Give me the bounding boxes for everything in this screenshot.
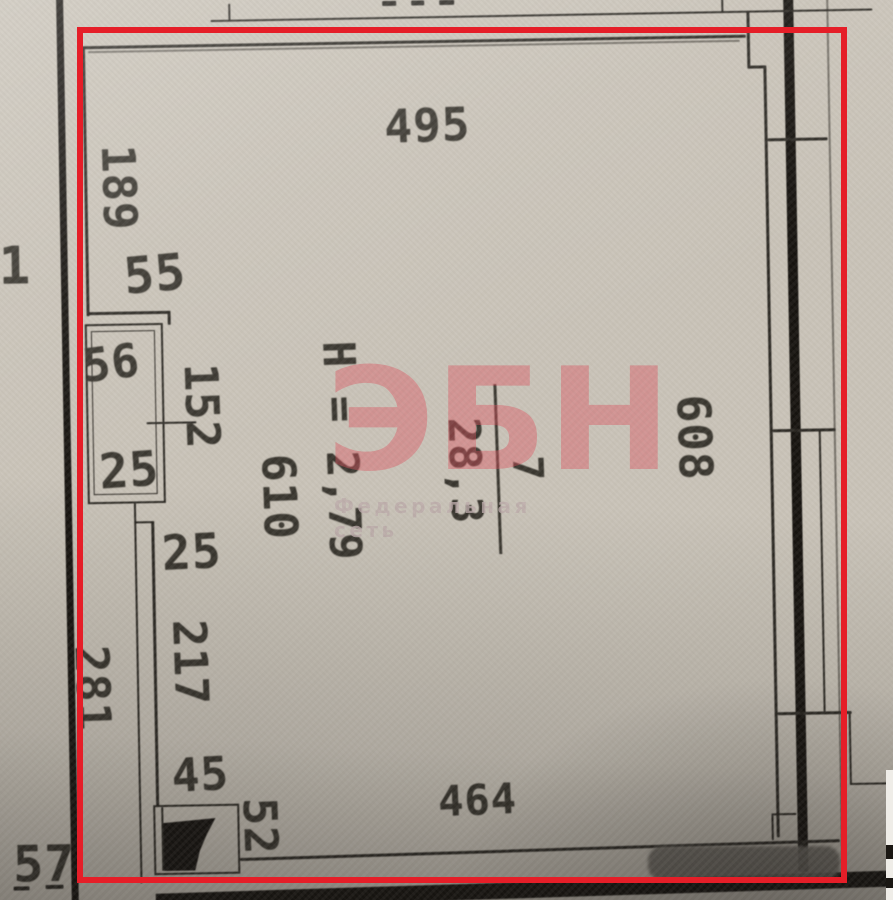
scan-edge-mark-1 [886,845,893,859]
wall-top-partition-1 [228,4,230,21]
wall-top-outer-face [210,8,872,22]
wall-left-outer [56,0,79,900]
dim-outside-bottom-57: 57 [13,839,76,890]
adjacent-room-label: 1 [0,240,31,293]
adjacent-wall-vertical [849,711,852,785]
floorplan-photo: 495 464 608 189 55 56 152 25 610 H = 2,7… [0,0,893,900]
wall-top-partition-2 [721,0,723,12]
highlight-rectangle [77,27,847,883]
clipped-digits-top [0,0,885,8]
scan-edge-mark-2 [886,878,893,888]
